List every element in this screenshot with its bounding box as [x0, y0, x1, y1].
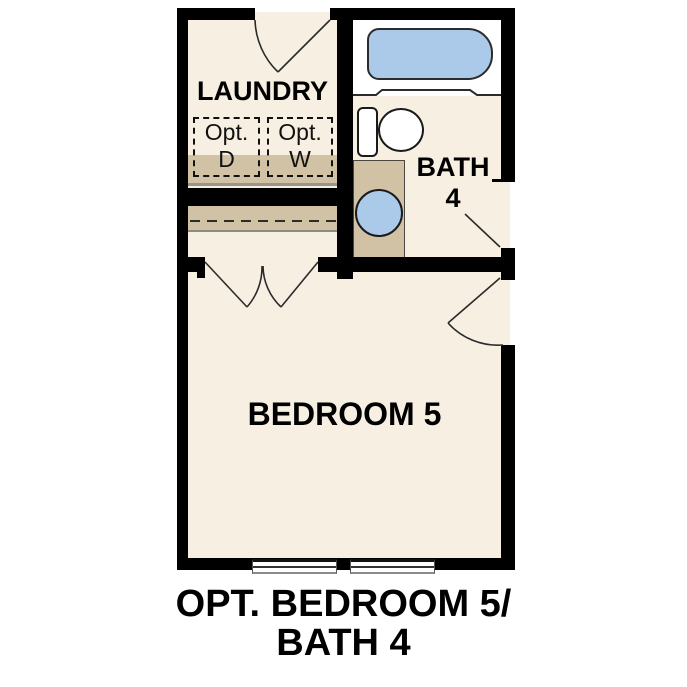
plan-caption: OPT. BEDROOM 5/ BATH 4 [60, 585, 627, 663]
floor-plan: Opt. D Opt. W [0, 0, 687, 687]
bath-room-number: 4 [398, 183, 508, 214]
bathtub-deck-edge [353, 90, 501, 95]
laundry-door-swing [255, 20, 278, 72]
plan-caption-line2: BATH 4 [60, 624, 627, 663]
bedroom-door-swing [448, 323, 503, 345]
bath-door-leaf [465, 214, 500, 247]
closet-door-left-leaf [205, 262, 247, 307]
closet-door-right-leaf [281, 262, 318, 307]
closet-door-left-swing [247, 266, 262, 307]
plan-caption-line1: OPT. BEDROOM 5/ [60, 585, 627, 624]
closet-door-right-swing [263, 266, 281, 307]
bath-room-label: BATH 4 [398, 152, 508, 214]
laundry-room-label: LAUNDRY [188, 76, 337, 107]
bedroom-room-label: BEDROOM 5 [188, 396, 501, 433]
bedroom-door-leaf [448, 278, 500, 323]
bath-room-name: BATH [398, 152, 508, 183]
laundry-door-leaf [278, 20, 330, 72]
